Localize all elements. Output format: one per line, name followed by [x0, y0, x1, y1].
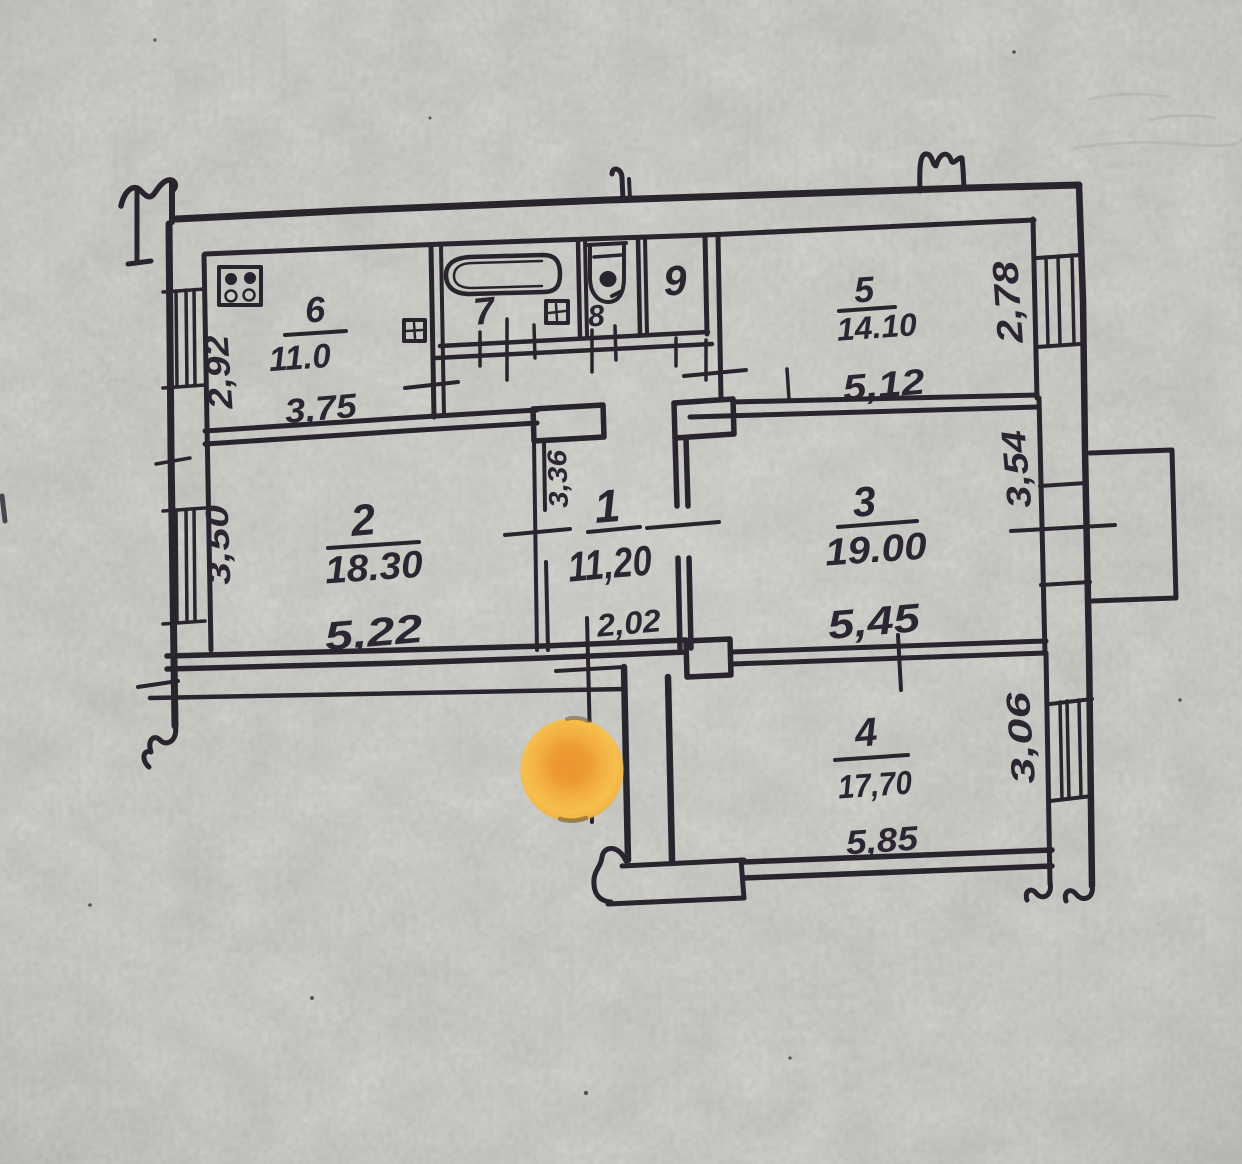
svg-text:17,70: 17,70 — [837, 763, 914, 805]
svg-text:5,85: 5,85 — [845, 819, 921, 862]
svg-text:3,75: 3,75 — [283, 387, 359, 431]
svg-text:3,50: 3,50 — [199, 504, 238, 585]
svg-text:3,06: 3,06 — [999, 690, 1042, 785]
svg-text:5,45: 5,45 — [826, 596, 922, 648]
svg-text:1: 1 — [592, 479, 622, 533]
svg-text:18.30: 18.30 — [324, 544, 425, 593]
svg-text:2,92: 2,92 — [197, 334, 240, 412]
svg-text:19.00: 19.00 — [824, 525, 929, 574]
svg-text:2,02: 2,02 — [594, 602, 662, 644]
svg-text:9: 9 — [662, 256, 689, 305]
svg-text:6: 6 — [304, 288, 328, 330]
svg-text:4: 4 — [852, 710, 879, 756]
svg-text:3,36: 3,36 — [542, 448, 574, 508]
svg-text:3,54: 3,54 — [995, 429, 1040, 510]
svg-text:5,12: 5,12 — [841, 361, 926, 409]
svg-text:2,78: 2,78 — [984, 260, 1031, 346]
svg-text:2: 2 — [348, 495, 378, 546]
svg-text:5,22: 5,22 — [323, 607, 424, 659]
svg-text:11.0: 11.0 — [268, 337, 333, 379]
svg-text:3: 3 — [850, 477, 877, 526]
svg-text:5: 5 — [853, 268, 877, 310]
svg-text:11,20: 11,20 — [566, 536, 654, 590]
svg-text:14.10: 14.10 — [836, 306, 919, 348]
